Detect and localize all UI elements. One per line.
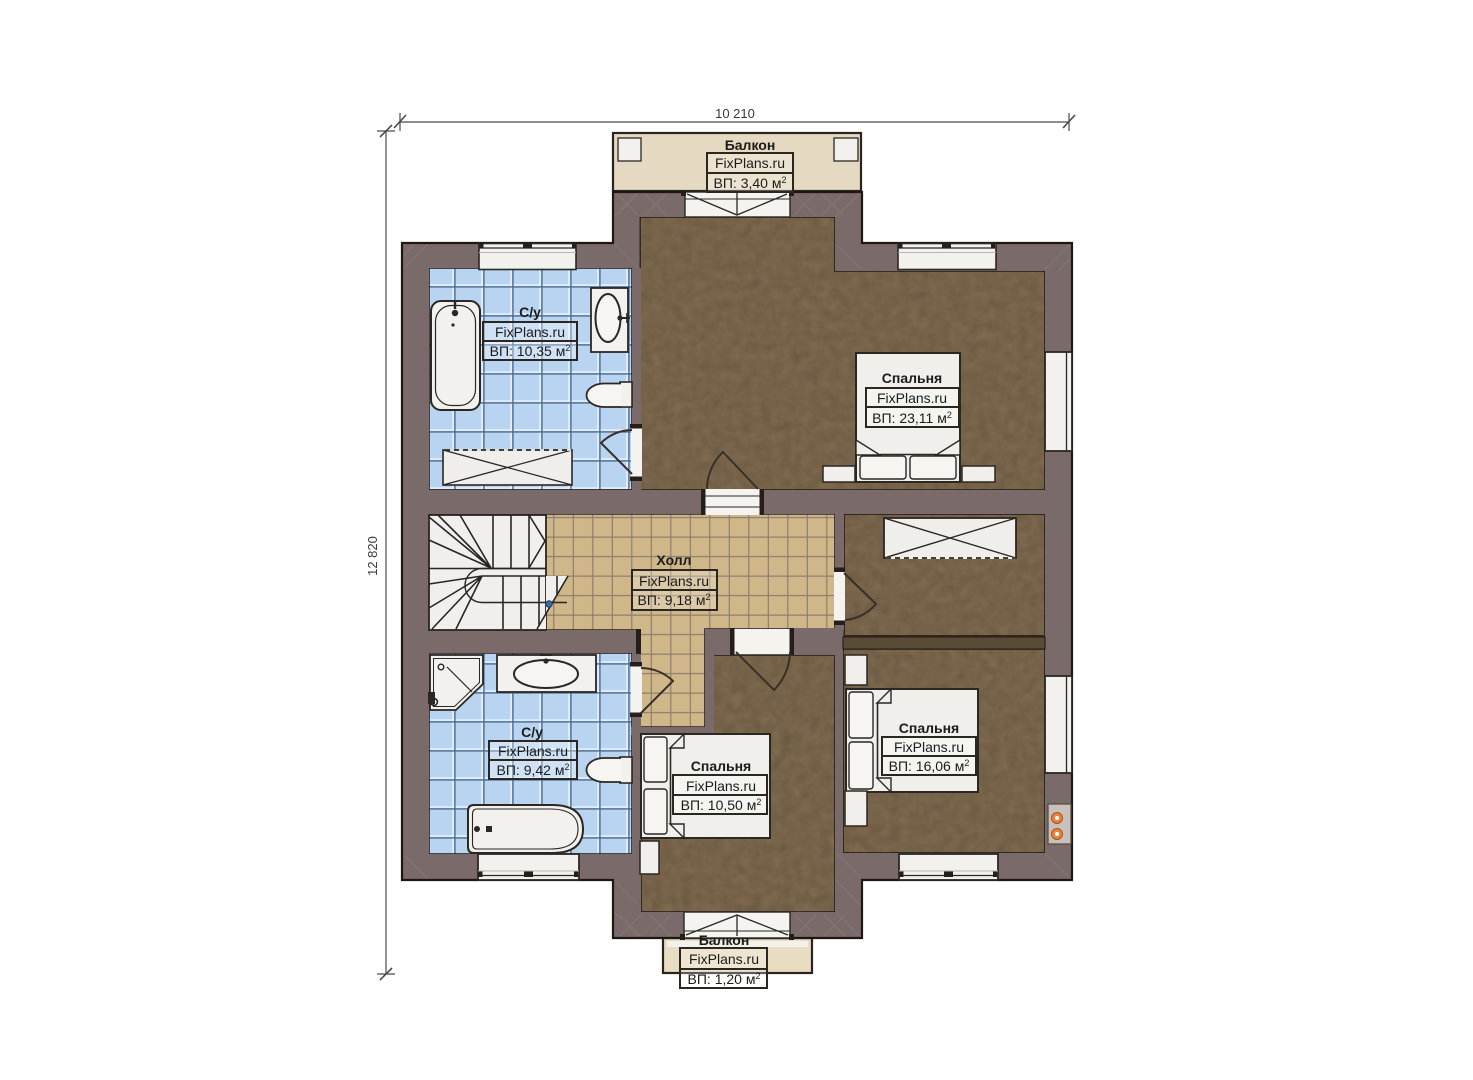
svg-text:FixPlans.ru: FixPlans.ru	[686, 778, 756, 794]
svg-text:ВП: 23,11 м2: ВП: 23,11 м2	[872, 410, 952, 426]
svg-text:Спальня: Спальня	[899, 720, 959, 736]
svg-text:Балкон: Балкон	[699, 932, 750, 948]
svg-text:FixPlans.ru: FixPlans.ru	[498, 743, 568, 759]
svg-text:FixPlans.ru: FixPlans.ru	[715, 155, 785, 171]
svg-text:С/у: С/у	[519, 304, 541, 320]
svg-text:12 820: 12 820	[365, 536, 380, 576]
svg-text:ВП: 9,42 м2: ВП: 9,42 м2	[497, 762, 570, 778]
svg-text:ВП: 16,06 м2: ВП: 16,06 м2	[889, 758, 970, 774]
svg-text:Холл: Холл	[656, 552, 691, 568]
svg-text:FixPlans.ru: FixPlans.ru	[894, 739, 964, 755]
svg-text:Спальня: Спальня	[882, 370, 942, 386]
svg-text:Балкон: Балкон	[725, 137, 776, 153]
svg-text:10 210: 10 210	[715, 106, 755, 121]
svg-text:С/у: С/у	[521, 724, 543, 740]
svg-text:ВП: 10,35 м2: ВП: 10,35 м2	[490, 343, 571, 359]
svg-text:FixPlans.ru: FixPlans.ru	[877, 390, 947, 406]
svg-text:Спальня: Спальня	[691, 758, 751, 774]
svg-text:ВП: 1,20 м2: ВП: 1,20 м2	[688, 971, 761, 987]
svg-text:FixPlans.ru: FixPlans.ru	[495, 324, 565, 340]
svg-text:ВП: 9,18 м2: ВП: 9,18 м2	[638, 592, 711, 608]
svg-text:FixPlans.ru: FixPlans.ru	[689, 951, 759, 967]
svg-text:ВП: 10,50 м2: ВП: 10,50 м2	[681, 797, 762, 813]
svg-text:ВП: 3,40 м2: ВП: 3,40 м2	[714, 175, 787, 191]
svg-text:FixPlans.ru: FixPlans.ru	[639, 573, 709, 589]
